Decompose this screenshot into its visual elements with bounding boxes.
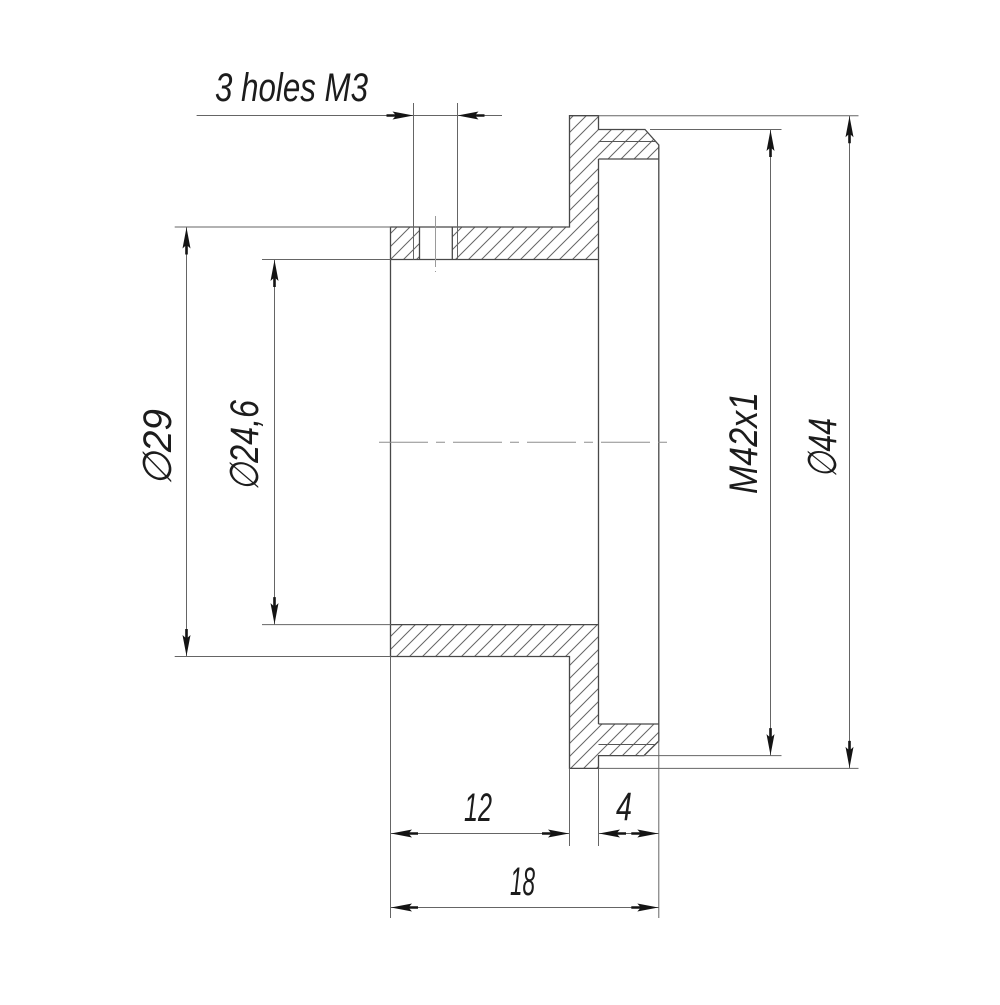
svg-text:∅44: ∅44	[801, 418, 845, 478]
svg-text:4: 4	[616, 785, 632, 829]
svg-text:3 holes M3: 3 holes M3	[215, 66, 368, 110]
svg-text:18: 18	[510, 860, 535, 904]
svg-text:∅29: ∅29	[136, 409, 180, 486]
svg-text:∅24,6: ∅24,6	[223, 399, 267, 491]
svg-text:M42x1: M42x1	[722, 392, 766, 494]
svg-text:12: 12	[464, 786, 492, 830]
